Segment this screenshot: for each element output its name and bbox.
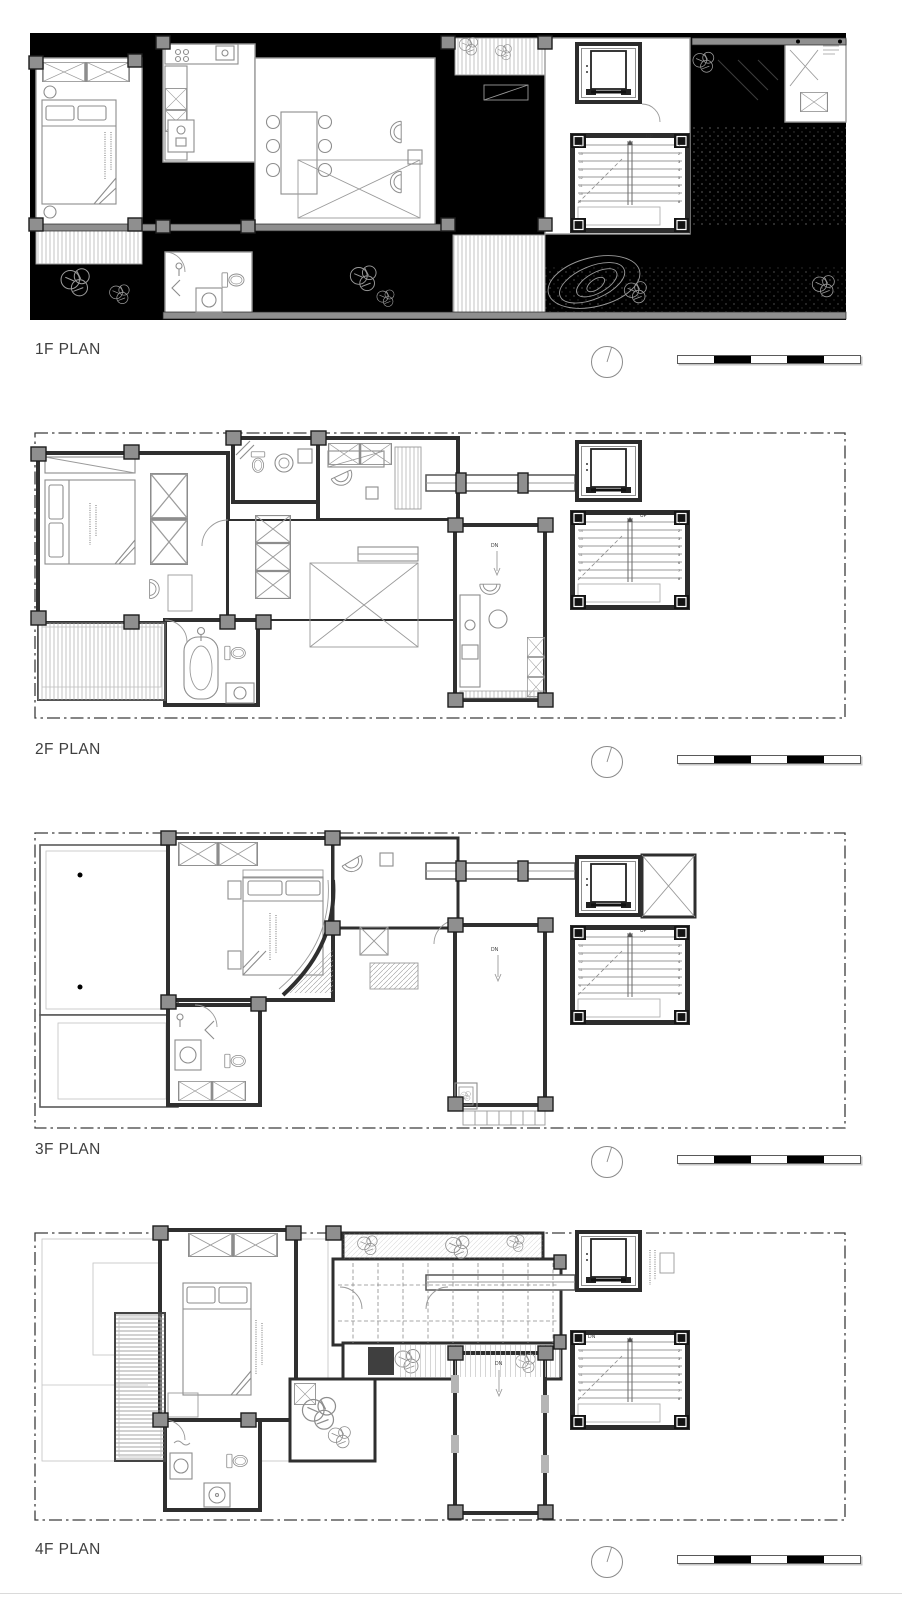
study [333,838,458,928]
scale-segment [787,756,823,763]
toilet-icon [251,452,265,473]
north-indicator-icon [590,1545,624,1579]
scale-segment [787,1156,823,1163]
floor-label-4f: 4F PLAN [35,1541,101,1559]
north-indicator-icon [590,1145,624,1179]
scale-segment [824,756,860,763]
elevator-icon [577,857,640,915]
scale-segment [787,356,823,363]
elevator-icon [577,44,640,102]
scale-bar [677,1555,861,1564]
elevator-icon [577,1232,640,1290]
scale-segment [714,756,750,763]
floor-label-3f: 3F PLAN [35,1141,101,1159]
scale-bar [677,755,861,764]
suite-bath [233,438,318,502]
floor-plan-1f: UP 12345678 161514131211109 [28,30,850,325]
toilet-icon [227,1454,248,1468]
north-indicator-icon [590,745,624,779]
floor-plan-2f: DN UP 12345678 1514131211109 [28,425,850,725]
floor-plan-3f: DN UP 12345678 1514131211109 [28,825,850,1135]
scale-segment [824,356,860,363]
floor-label-1f: 1F PLAN [35,341,101,359]
toilet-icon [225,1054,246,1068]
scale-segment [714,1156,750,1163]
void-room [455,525,545,700]
basin-icon [170,1453,192,1479]
stair-icon [571,134,689,232]
scale-bar [677,355,861,364]
toilet-icon [225,646,246,660]
scale-segment [714,1556,750,1563]
scale-segment [678,1556,714,1563]
terrace [40,845,178,1107]
bedroom [160,1230,296,1420]
scale-segment [824,1156,860,1163]
sink-icon [168,120,194,152]
page-bottom-edge [0,1593,902,1594]
void-dn-label: DN [495,1361,503,1367]
floor-label-2f: 2F PLAN [35,741,101,759]
rooms [38,438,575,705]
elevator-icon [577,442,640,500]
site-wall [163,312,846,319]
louver-deck [115,1313,165,1461]
stair-direction-label: DN [588,1334,596,1340]
plan-sheet: UP 12345678 161514131211109 [0,0,902,1600]
stair-icon [571,926,689,1024]
scale-segment [678,756,714,763]
floor-plan-4f: DN DN 12345678 1514131211109 [28,1225,850,1525]
bench-icon [370,963,418,989]
scale-segment [751,1556,787,1563]
scale-segment [678,356,714,363]
scale-segment [751,1156,787,1163]
void-room [455,925,545,1105]
covered-deck [333,1259,561,1345]
scale-segment [714,356,750,363]
scale-segment [751,756,787,763]
top-wall [692,38,846,45]
stair-direction-label: UP [646,134,654,140]
scale-segment [751,356,787,363]
stair-icon [571,1331,689,1429]
stair-direction-label: UP [640,513,648,519]
machine-note [650,1250,674,1285]
basin-icon [196,288,222,312]
toilet-icon [222,273,244,287]
scale-bar [677,1155,861,1164]
bedroom [38,453,228,623]
basin-icon [175,1040,201,1070]
void-dn-label: DN [491,543,499,549]
stair-direction-label: UP [640,928,648,934]
scale-segment [824,1556,860,1563]
basin-icon [226,683,254,703]
scale-segment [678,1156,714,1163]
stair-icon [571,511,689,609]
scale-segment [787,1556,823,1563]
dark-planter-box [368,1347,394,1375]
dining-table-icon [281,112,317,194]
void-dn-label: DN [491,947,499,953]
north-indicator-icon [590,345,624,379]
